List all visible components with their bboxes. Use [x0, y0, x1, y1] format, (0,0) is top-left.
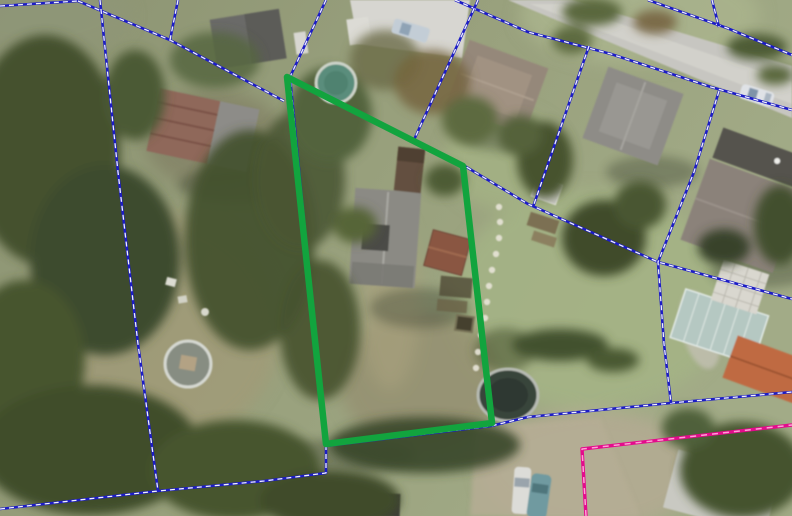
round-pool-water: [324, 71, 348, 95]
trampoline-mat: [179, 355, 197, 372]
map-viewport[interactable]: [0, 0, 792, 516]
garden-object: [201, 308, 209, 316]
swimming-pool-water: [488, 378, 528, 412]
aerial-map-canvas[interactable]: [0, 0, 792, 516]
